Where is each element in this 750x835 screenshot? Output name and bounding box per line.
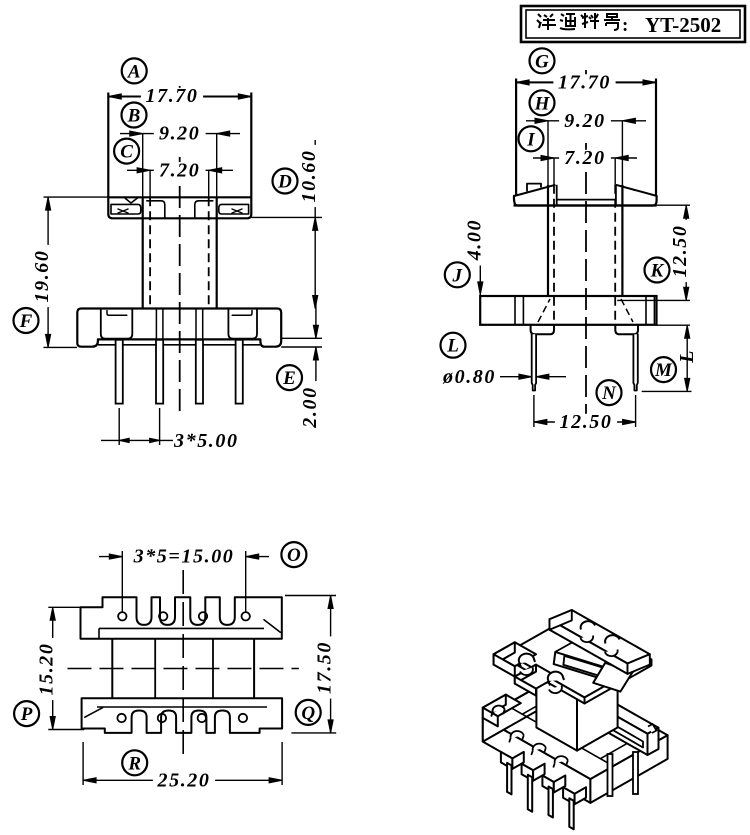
svg-text:J: J <box>452 265 463 286</box>
svg-text:C: C <box>120 142 133 163</box>
svg-text:12.50: 12.50 <box>669 225 691 278</box>
svg-text:17.70: 17.70 <box>146 85 199 107</box>
svg-text:ø0.80: ø0.80 <box>442 366 496 388</box>
svg-text:R: R <box>127 753 141 774</box>
svg-text:E: E <box>282 368 296 389</box>
svg-text:F: F <box>19 311 33 332</box>
svg-text:4.00: 4.00 <box>463 219 485 261</box>
svg-text:9.20: 9.20 <box>159 123 200 145</box>
svg-text:B: B <box>127 106 141 127</box>
svg-text:7.20: 7.20 <box>159 159 200 181</box>
svg-text:L: L <box>676 349 698 364</box>
svg-text:17.70: 17.70 <box>558 71 611 93</box>
svg-text:M: M <box>654 360 673 381</box>
svg-text:Q: Q <box>301 703 315 724</box>
svg-text:O: O <box>287 545 301 566</box>
svg-text:15.20: 15.20 <box>36 643 58 696</box>
svg-text:L: L <box>446 336 459 357</box>
svg-text:G: G <box>535 51 549 72</box>
svg-text:H: H <box>534 93 551 114</box>
svg-text:D: D <box>277 172 292 193</box>
svg-text:9.20: 9.20 <box>564 110 605 132</box>
svg-text:19.60: 19.60 <box>31 250 53 303</box>
svg-text:7.20: 7.20 <box>564 147 605 169</box>
svg-text:I: I <box>526 129 535 150</box>
svg-text::: : <box>622 15 628 36</box>
svg-text:3*5.00: 3*5.00 <box>173 430 239 452</box>
svg-text:2.00: 2.00 <box>299 386 321 428</box>
svg-text:N: N <box>601 383 617 404</box>
svg-text:25.20: 25.20 <box>157 769 211 791</box>
svg-text:YT-2502: YT-2502 <box>645 13 721 37</box>
svg-text:17.50: 17.50 <box>314 641 336 694</box>
svg-text:12.50: 12.50 <box>560 411 613 433</box>
svg-text:K: K <box>650 261 665 282</box>
svg-text:10.60: 10.60 <box>298 150 320 203</box>
svg-text:P: P <box>20 704 33 725</box>
svg-text:A: A <box>127 61 141 82</box>
svg-text:3*5=15.00: 3*5=15.00 <box>133 546 235 568</box>
